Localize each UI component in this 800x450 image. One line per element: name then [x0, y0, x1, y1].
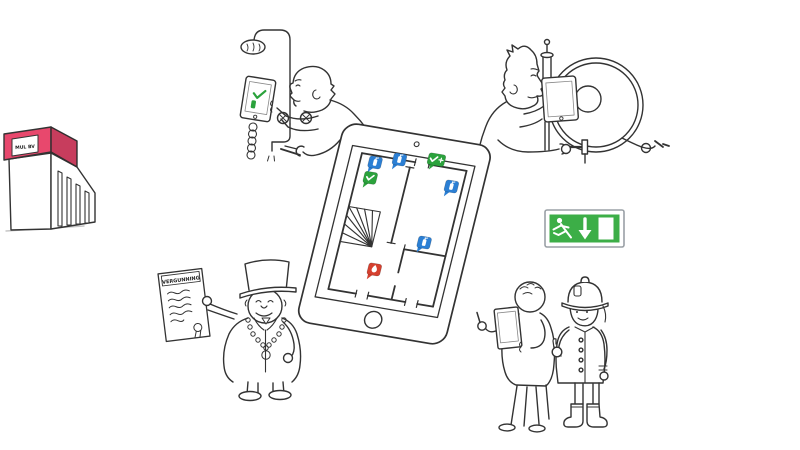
mayor [203, 260, 301, 401]
firefighter [552, 277, 608, 427]
shower-head-icon [241, 40, 265, 54]
boots [564, 404, 607, 427]
illustration-canvas: MUL BV [0, 0, 800, 450]
inspection-tablet-left [240, 76, 276, 122]
pen-icon [281, 149, 300, 155]
inspection-tablet-small [494, 307, 522, 349]
fire-helmet-icon [568, 282, 602, 302]
inspection-tablet-right [542, 76, 579, 122]
ear-icon [510, 85, 517, 94]
hose-nozzle-icon [655, 141, 669, 147]
coiled-cord [247, 123, 257, 159]
permit-document: VERGUNNING [158, 269, 210, 342]
ear-icon [313, 90, 320, 99]
mayor-scene: VERGUNNING [158, 260, 301, 401]
office-building: MUL BV [4, 127, 95, 231]
top-hat-icon [245, 260, 289, 291]
building-wall-front [9, 153, 51, 230]
emergency-exit-sign [545, 210, 624, 247]
hose-reel-inspection-scene [474, 40, 669, 185]
approval-scene [477, 277, 608, 432]
door-icon [599, 218, 614, 240]
inspector-back [477, 282, 555, 432]
floorplan-tablet [296, 122, 493, 346]
